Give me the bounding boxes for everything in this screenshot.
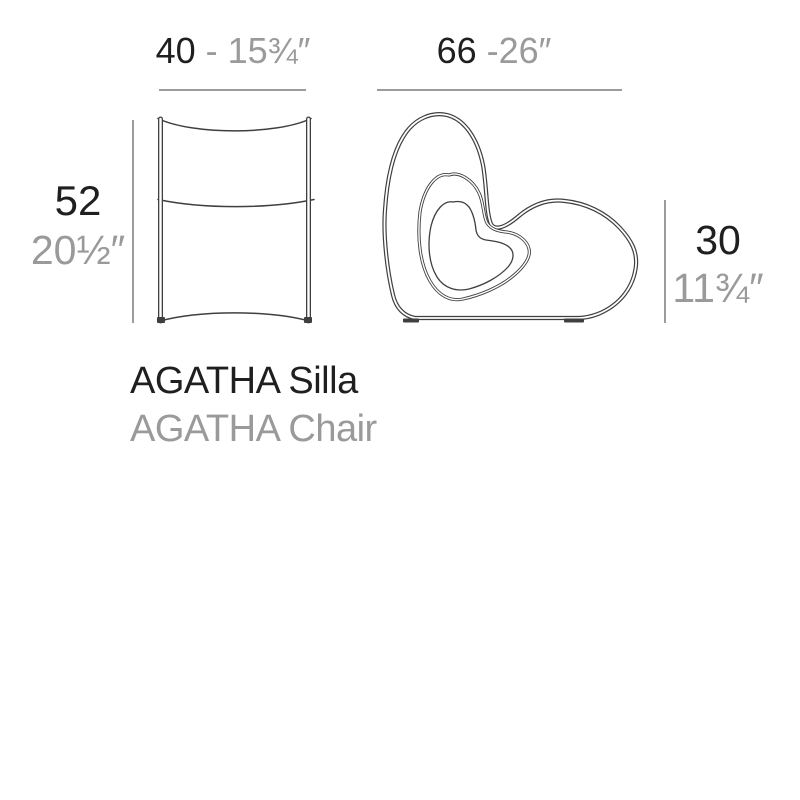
front-left-foot bbox=[157, 317, 165, 323]
product-name-secondary: AGATHA Chair bbox=[130, 410, 377, 448]
side-right-foot bbox=[564, 319, 584, 323]
chair-front-view bbox=[157, 119, 314, 324]
technical-drawing bbox=[0, 0, 800, 800]
front-bottom-edge bbox=[158, 313, 311, 322]
front-middle-seam bbox=[158, 200, 314, 207]
front-height-inches-label: 20½″ bbox=[18, 230, 138, 271]
front-right-foot bbox=[304, 317, 312, 323]
product-name-primary: AGATHA Silla bbox=[130, 362, 358, 400]
front-width-label: 40 - 15¾″ bbox=[113, 33, 353, 69]
side-width-inches: -26″ bbox=[487, 30, 552, 71]
spec-sheet: 40 - 15¾″ 66 -26″ 52 20½″ 30 11¾″ AGATHA… bbox=[0, 0, 800, 800]
front-width-cm: 40 bbox=[156, 30, 196, 71]
side-width-label: 66 -26″ bbox=[374, 33, 614, 69]
side-height-inches-label: 11¾″ bbox=[658, 268, 778, 309]
side-height-cm-label: 30 bbox=[658, 220, 778, 261]
front-width-inches: - 15¾″ bbox=[206, 30, 311, 71]
front-height-cm-label: 52 bbox=[18, 180, 138, 222]
side-width-cm: 66 bbox=[437, 30, 477, 71]
front-top-edge bbox=[158, 119, 311, 131]
chair-side-view bbox=[384, 114, 636, 322]
side-left-foot bbox=[403, 319, 419, 323]
